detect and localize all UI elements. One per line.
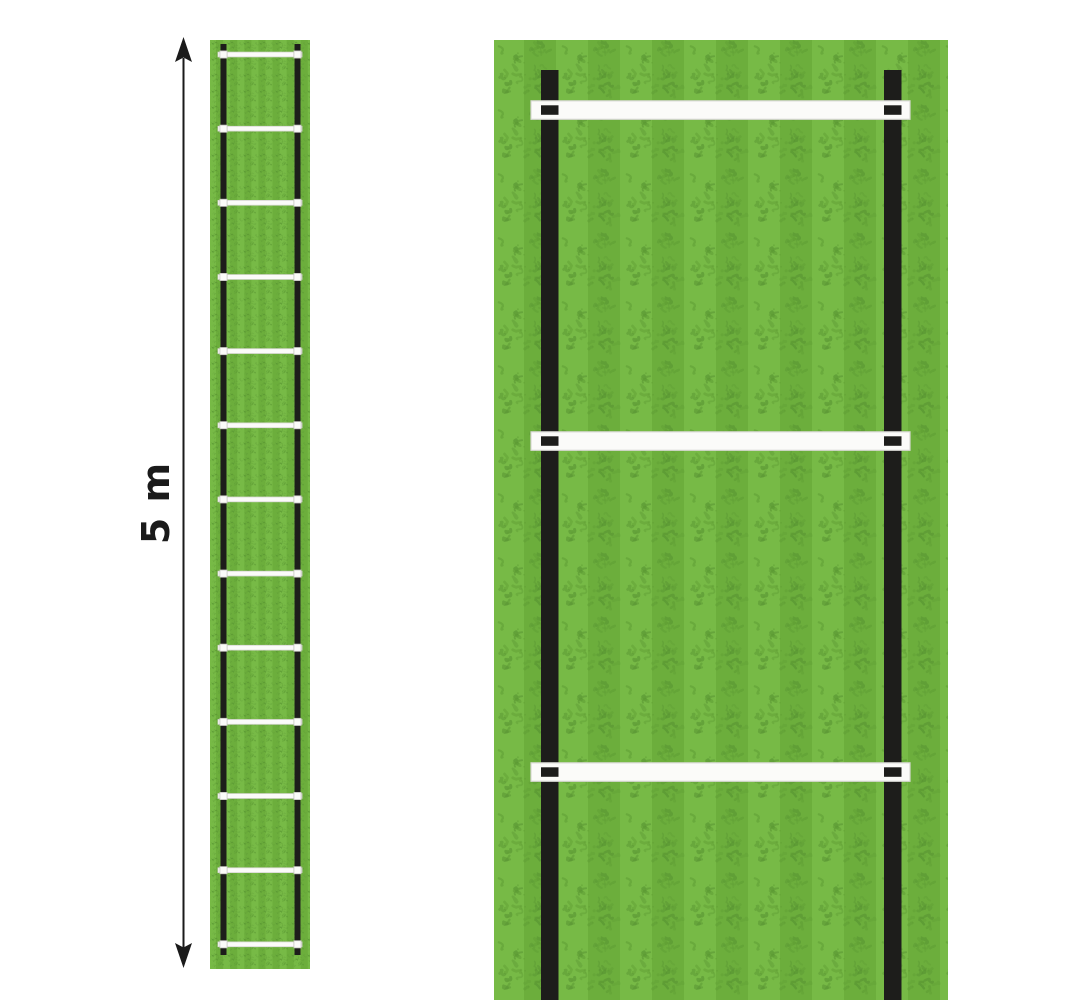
rung-clip <box>294 422 301 429</box>
rung-clip <box>294 51 301 58</box>
rung-clip <box>294 273 301 280</box>
rung-clip <box>884 436 902 446</box>
rung-clip <box>220 718 227 725</box>
rung-clip <box>541 105 559 115</box>
ladder-rung <box>218 794 302 799</box>
rung-clip <box>884 767 902 777</box>
rung-clip <box>541 436 559 446</box>
rung-clip <box>294 199 301 206</box>
rung-clip <box>294 496 301 503</box>
ladder-rung <box>218 349 302 354</box>
grass-texture <box>494 40 948 1000</box>
ladder-rung <box>218 942 302 947</box>
ladder-rung <box>218 720 302 725</box>
rung-clip <box>220 51 227 58</box>
ladder-rung <box>531 763 910 782</box>
figure: 5 m <box>0 0 1070 1000</box>
ladder-rung <box>531 101 910 120</box>
ladder-rung <box>218 571 302 576</box>
ladder-rail <box>884 70 902 1000</box>
rung-clip <box>294 718 301 725</box>
rung-clip <box>294 570 301 577</box>
rung-clip <box>884 105 902 115</box>
ladder-rung <box>218 497 302 502</box>
rung-clip <box>220 570 227 577</box>
ladder-rung <box>218 52 302 57</box>
rung-clip <box>294 941 301 948</box>
rung-clip <box>220 867 227 874</box>
rung-clip <box>294 644 301 651</box>
rung-clip <box>220 496 227 503</box>
ladder-rung <box>218 200 302 205</box>
rung-clip <box>294 348 301 355</box>
rung-clip <box>220 792 227 799</box>
rung-clip <box>220 125 227 132</box>
ladder-rung <box>218 645 302 650</box>
ladder-rung <box>218 126 302 131</box>
rung-clip <box>220 644 227 651</box>
rung-clip <box>220 199 227 206</box>
agility-ladder-overview <box>210 40 310 969</box>
ladder-rung <box>218 275 302 280</box>
ladder-rung <box>531 432 910 451</box>
agility-ladder-closeup <box>494 40 948 1000</box>
rung-clip <box>220 941 227 948</box>
rung-clip <box>294 867 301 874</box>
rung-clip <box>220 273 227 280</box>
ladder-rung <box>218 423 302 428</box>
rung-clip <box>541 767 559 777</box>
rung-clip <box>220 422 227 429</box>
dimension-label: 5 m <box>134 462 178 544</box>
ladder-rung <box>218 868 302 873</box>
rung-clip <box>294 792 301 799</box>
rung-clip <box>220 348 227 355</box>
ladder-rail <box>541 70 559 1000</box>
rung-clip <box>294 125 301 132</box>
